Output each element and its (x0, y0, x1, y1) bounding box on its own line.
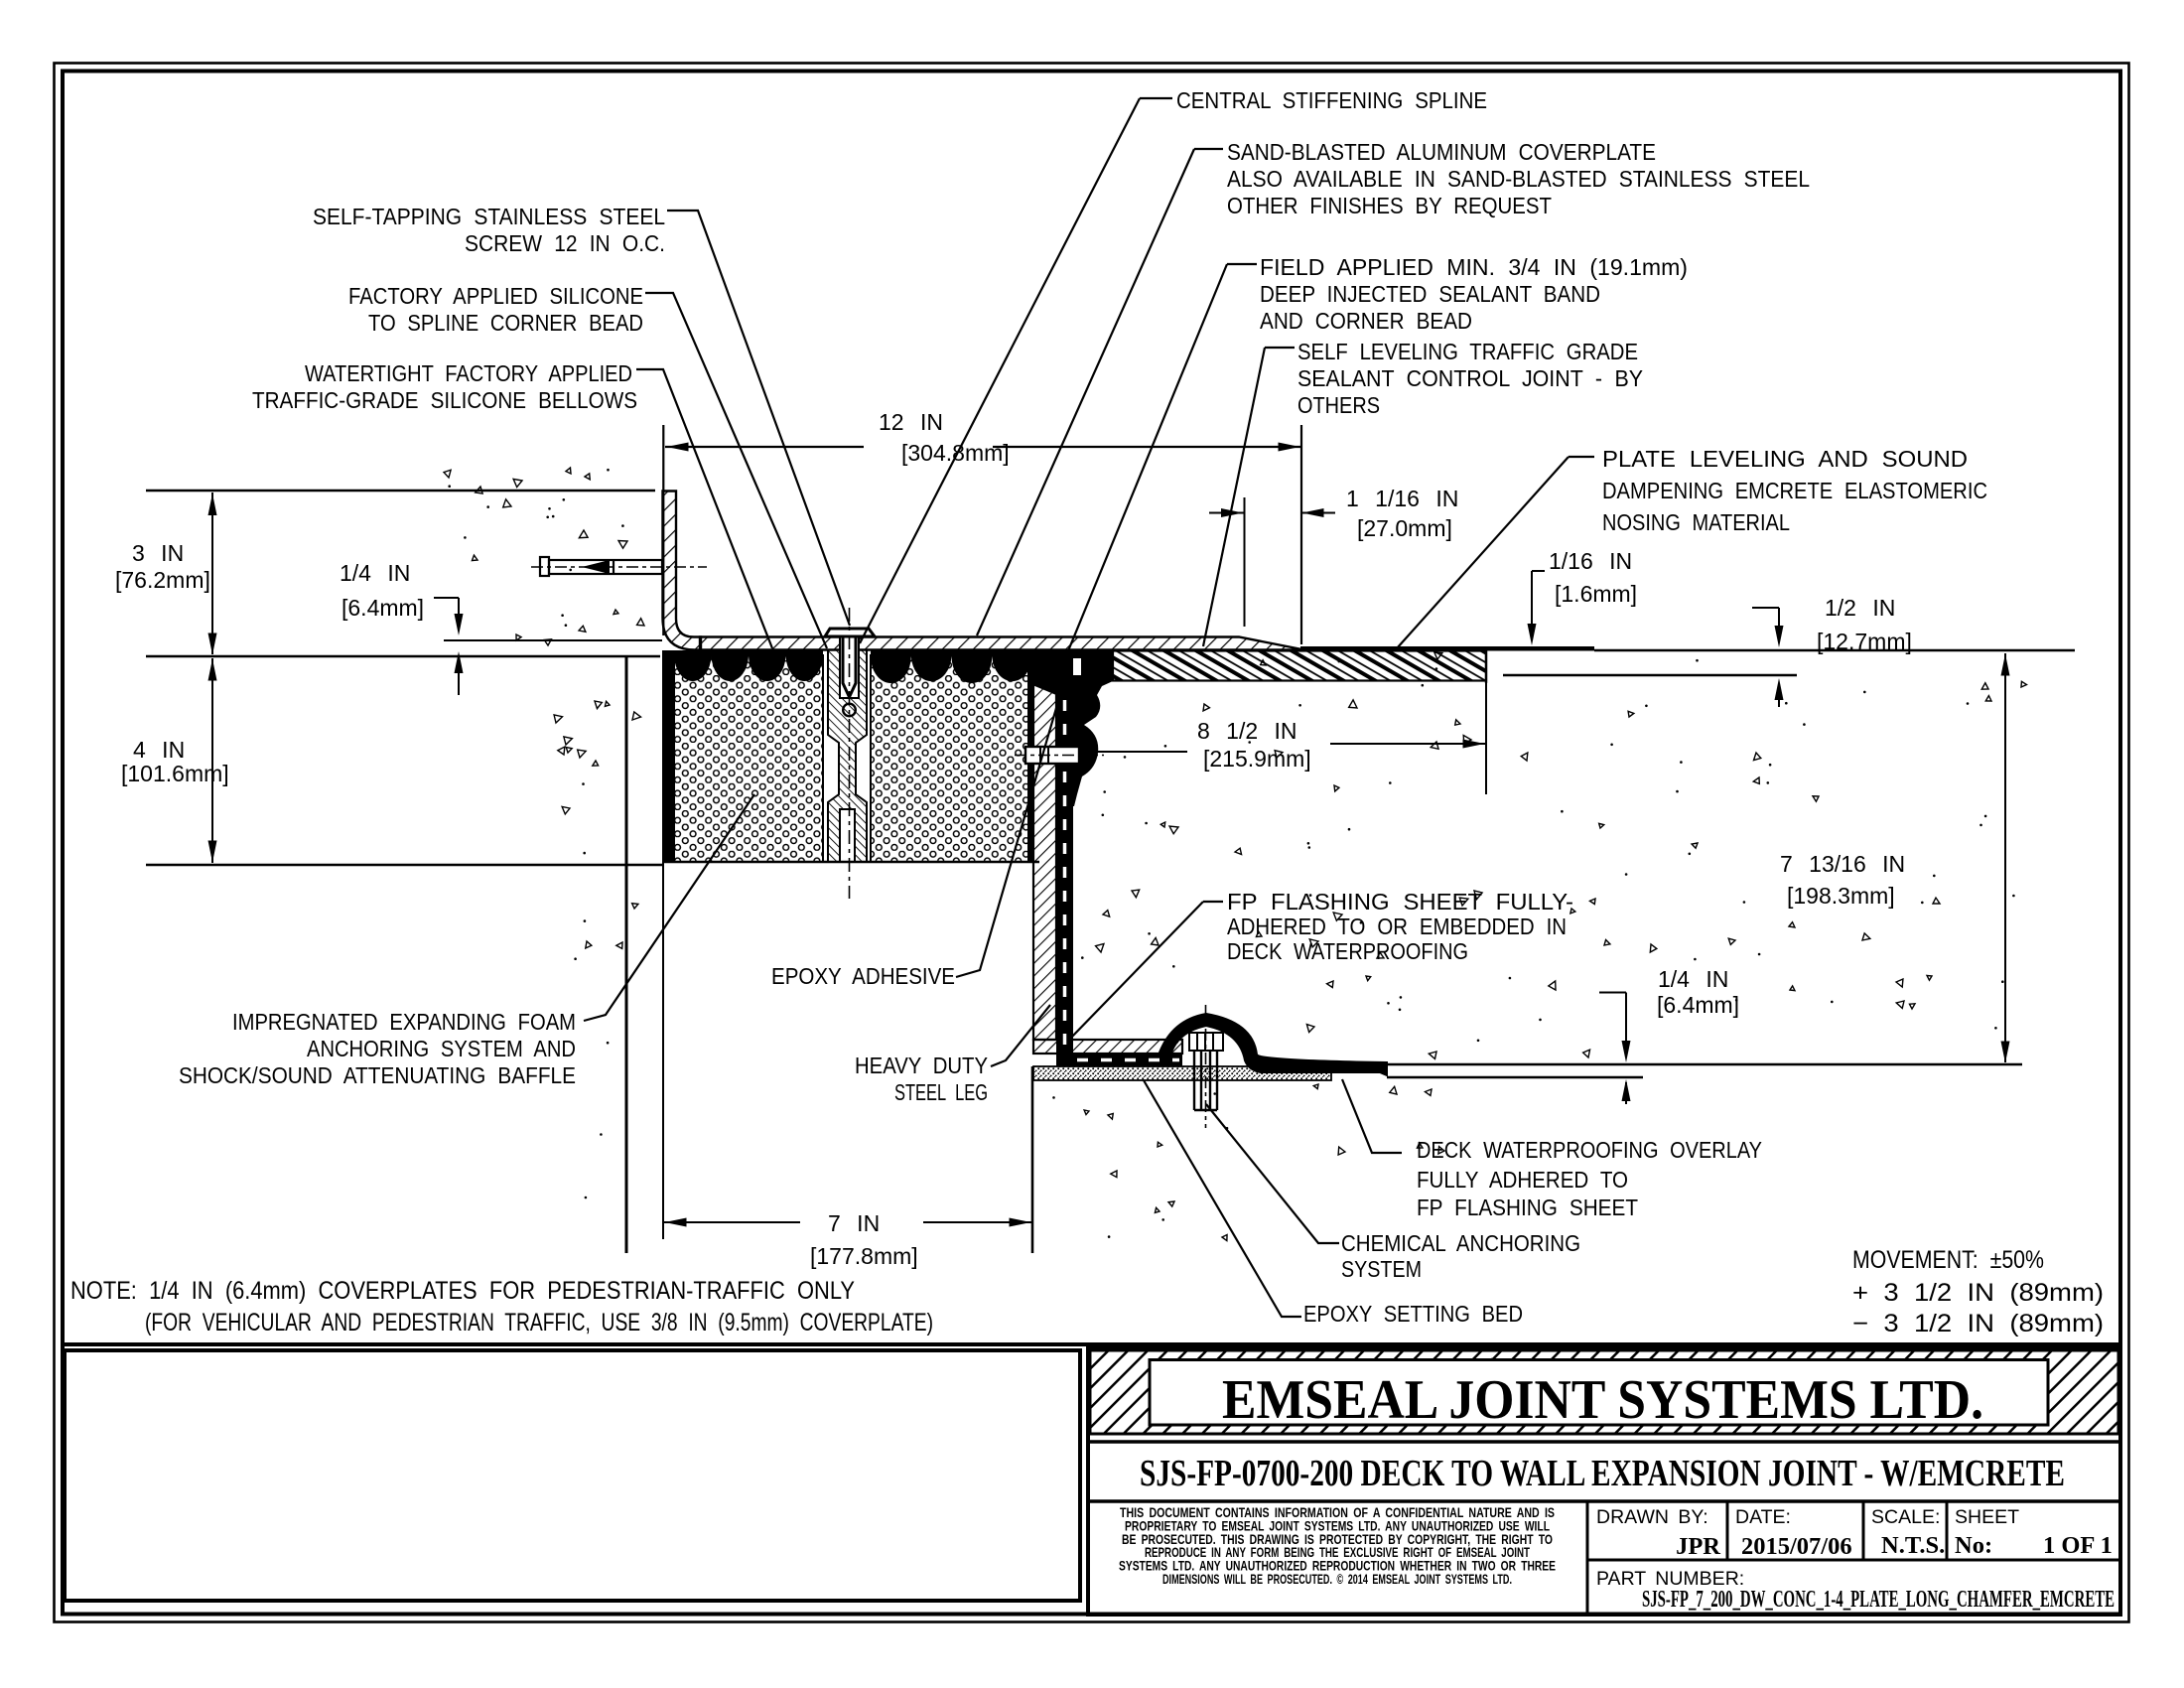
svg-text:N.T.S.: N.T.S. (1881, 1532, 1945, 1559)
svg-text:FACTORY APPLIED SILICONE: FACTORY APPLIED SILICONE (348, 283, 643, 309)
svg-text:12 IN: 12 IN (879, 409, 943, 435)
svg-text:[101.6mm]: [101.6mm] (121, 761, 229, 786)
svg-text:(FOR VEHICULAR AND PEDESTRIAN: (FOR VEHICULAR AND PEDESTRIAN TRAFFIC, U… (145, 1309, 933, 1336)
svg-text:MOVEMENT: ±50%: MOVEMENT: ±50% (1852, 1246, 2044, 1274)
svg-text:PLATE LEVELING AND SOUND: PLATE LEVELING AND SOUND (1602, 446, 1968, 472)
svg-text:[6.4mm]: [6.4mm] (1657, 992, 1739, 1018)
svg-text:ADHERED TO OR EMBEDDED IN: ADHERED TO OR EMBEDDED IN (1227, 914, 1567, 939)
svg-text:ANCHORING SYSTEM AND: ANCHORING SYSTEM AND (307, 1036, 576, 1061)
svg-text:No:: No: (1955, 1532, 1992, 1559)
svg-text:1/4 IN: 1/4 IN (340, 560, 410, 586)
svg-text:OTHER FINISHES BY REQUEST: OTHER FINISHES BY REQUEST (1227, 193, 1552, 218)
svg-text:[304.8mm]: [304.8mm] (901, 440, 1010, 466)
svg-text:EPOXY ADHESIVE: EPOXY ADHESIVE (771, 963, 955, 989)
svg-text:FULLY ADHERED TO: FULLY ADHERED TO (1417, 1167, 1628, 1193)
svg-text:DECK WATERPROOFING: DECK WATERPROOFING (1227, 938, 1468, 964)
svg-text:SJS-FP_7_200_DW_CONC_1-4_PLATE: SJS-FP_7_200_DW_CONC_1-4_PLATE_LONG_CHAM… (1642, 1587, 2115, 1613)
svg-text:SAND-BLASTED ALUMINUM COVERPLA: SAND-BLASTED ALUMINUM COVERPLATE (1227, 139, 1656, 165)
svg-text:SCALE:: SCALE: (1871, 1506, 1940, 1528)
svg-text:JPR: JPR (1676, 1533, 1720, 1560)
svg-text:NOSING MATERIAL: NOSING MATERIAL (1602, 509, 1790, 535)
svg-text:1 OF 1: 1 OF 1 (2043, 1532, 2113, 1559)
svg-text:FP FLASHING SHEET FULLY-: FP FLASHING SHEET FULLY- (1227, 889, 1573, 914)
svg-text:DRAWN BY:: DRAWN BY: (1596, 1506, 1708, 1528)
svg-text:2015/07/06: 2015/07/06 (1741, 1533, 1852, 1560)
svg-text:SELF LEVELING TRAFFIC GRADE: SELF LEVELING TRAFFIC GRADE (1297, 339, 1638, 364)
svg-text:HEAVY DUTY: HEAVY DUTY (855, 1053, 988, 1078)
svg-text:[76.2mm]: [76.2mm] (115, 567, 210, 593)
svg-text:OTHERS: OTHERS (1297, 392, 1380, 418)
svg-text:DAMPENING EMCRETE ELASTOMERIC: DAMPENING EMCRETE ELASTOMERIC (1602, 478, 1987, 503)
svg-text:[177.8mm]: [177.8mm] (810, 1243, 918, 1269)
svg-text:DEEP INJECTED SEALANT BAND: DEEP INJECTED SEALANT BAND (1260, 281, 1600, 307)
svg-text:IMPREGNATED EXPANDING FOAM: IMPREGNATED EXPANDING FOAM (232, 1009, 576, 1035)
svg-text:STEEL LEG: STEEL LEG (894, 1079, 988, 1105)
svg-text:+ 3 1/2 IN (89mm): + 3 1/2 IN (89mm) (1852, 1279, 2104, 1307)
svg-text:WATERTIGHT FACTORY APPLIED: WATERTIGHT FACTORY APPLIED (305, 360, 632, 386)
svg-text:[1.6mm]: [1.6mm] (1555, 581, 1637, 607)
svg-text:AND CORNER BEAD: AND CORNER BEAD (1260, 308, 1472, 334)
svg-text:SCREW 12 IN O.C.: SCREW 12 IN O.C. (465, 230, 665, 256)
svg-text:TO SPLINE CORNER BEAD: TO SPLINE CORNER BEAD (368, 310, 643, 336)
svg-text:DATE:: DATE: (1735, 1506, 1791, 1528)
svg-text:NOTE: 1/4 IN (6.4mm) COVERPLAT: NOTE: 1/4 IN (6.4mm) COVERPLATES FOR PED… (70, 1277, 855, 1305)
svg-text:1/4 IN: 1/4 IN (1658, 966, 1728, 992)
svg-text:1/2 IN: 1/2 IN (1825, 595, 1895, 621)
svg-text:EPOXY SETTING BED: EPOXY SETTING BED (1303, 1301, 1523, 1327)
svg-text:SJS-FP-0700-200 DECK TO WALL E: SJS-FP-0700-200 DECK TO WALL EXPANSION J… (1140, 1453, 2065, 1494)
svg-text:DECK WATERPROOFING OVERLAY: DECK WATERPROOFING OVERLAY (1417, 1137, 1762, 1163)
svg-text:1/16 IN: 1/16 IN (1549, 548, 1632, 574)
svg-text:[6.4mm]: [6.4mm] (341, 595, 424, 621)
svg-text:[215.9mm]: [215.9mm] (1203, 746, 1311, 772)
svg-text:FP FLASHING SHEET: FP FLASHING SHEET (1417, 1195, 1638, 1220)
svg-text:7 13/16 IN: 7 13/16 IN (1780, 851, 1905, 877)
svg-text:SHEET: SHEET (1955, 1506, 2019, 1528)
svg-text:CHEMICAL ANCHORING: CHEMICAL ANCHORING (1341, 1230, 1580, 1256)
svg-text:4 IN: 4 IN (133, 737, 185, 763)
svg-text:SYSTEM: SYSTEM (1341, 1256, 1422, 1282)
svg-text:[27.0mm]: [27.0mm] (1357, 515, 1452, 541)
svg-text:8 1/2 IN: 8 1/2 IN (1197, 718, 1297, 744)
svg-text:7 IN: 7 IN (828, 1210, 880, 1236)
svg-text:1 1/16 IN: 1 1/16 IN (1346, 486, 1458, 511)
svg-text:SHOCK/SOUND ATTENUATING BAFFLE: SHOCK/SOUND ATTENUATING BAFFLE (179, 1062, 576, 1088)
svg-text:DIMENSIONS WILL BE PROSECUTED.: DIMENSIONS WILL BE PROSECUTED. © 2014 EM… (1162, 1572, 1512, 1587)
svg-text:TRAFFIC-GRADE SILICONE BELLOWS: TRAFFIC-GRADE SILICONE BELLOWS (252, 387, 637, 413)
svg-text:FIELD APPLIED MIN. 3/4 IN (19.: FIELD APPLIED MIN. 3/4 IN (19.1mm) (1260, 254, 1688, 280)
svg-text:[12.7mm]: [12.7mm] (1817, 629, 1912, 654)
svg-text:SELF-TAPPING STAINLESS STEEL: SELF-TAPPING STAINLESS STEEL (313, 204, 665, 229)
svg-text:− 3 1/2 IN (89mm): − 3 1/2 IN (89mm) (1852, 1310, 2104, 1337)
svg-text:ALSO AVAILABLE IN SAND-BLASTED: ALSO AVAILABLE IN SAND-BLASTED STAINLESS… (1227, 166, 1810, 192)
svg-text:SEALANT CONTROL JOINT - BY: SEALANT CONTROL JOINT - BY (1297, 365, 1643, 391)
svg-text:EMSEAL JOINT SYSTEMS LTD.: EMSEAL JOINT SYSTEMS LTD. (1222, 1369, 1983, 1431)
svg-text:[198.3mm]: [198.3mm] (1787, 883, 1895, 909)
svg-text:3 IN: 3 IN (132, 540, 184, 566)
svg-text:CENTRAL STIFFENING SPLINE: CENTRAL STIFFENING SPLINE (1176, 87, 1487, 113)
